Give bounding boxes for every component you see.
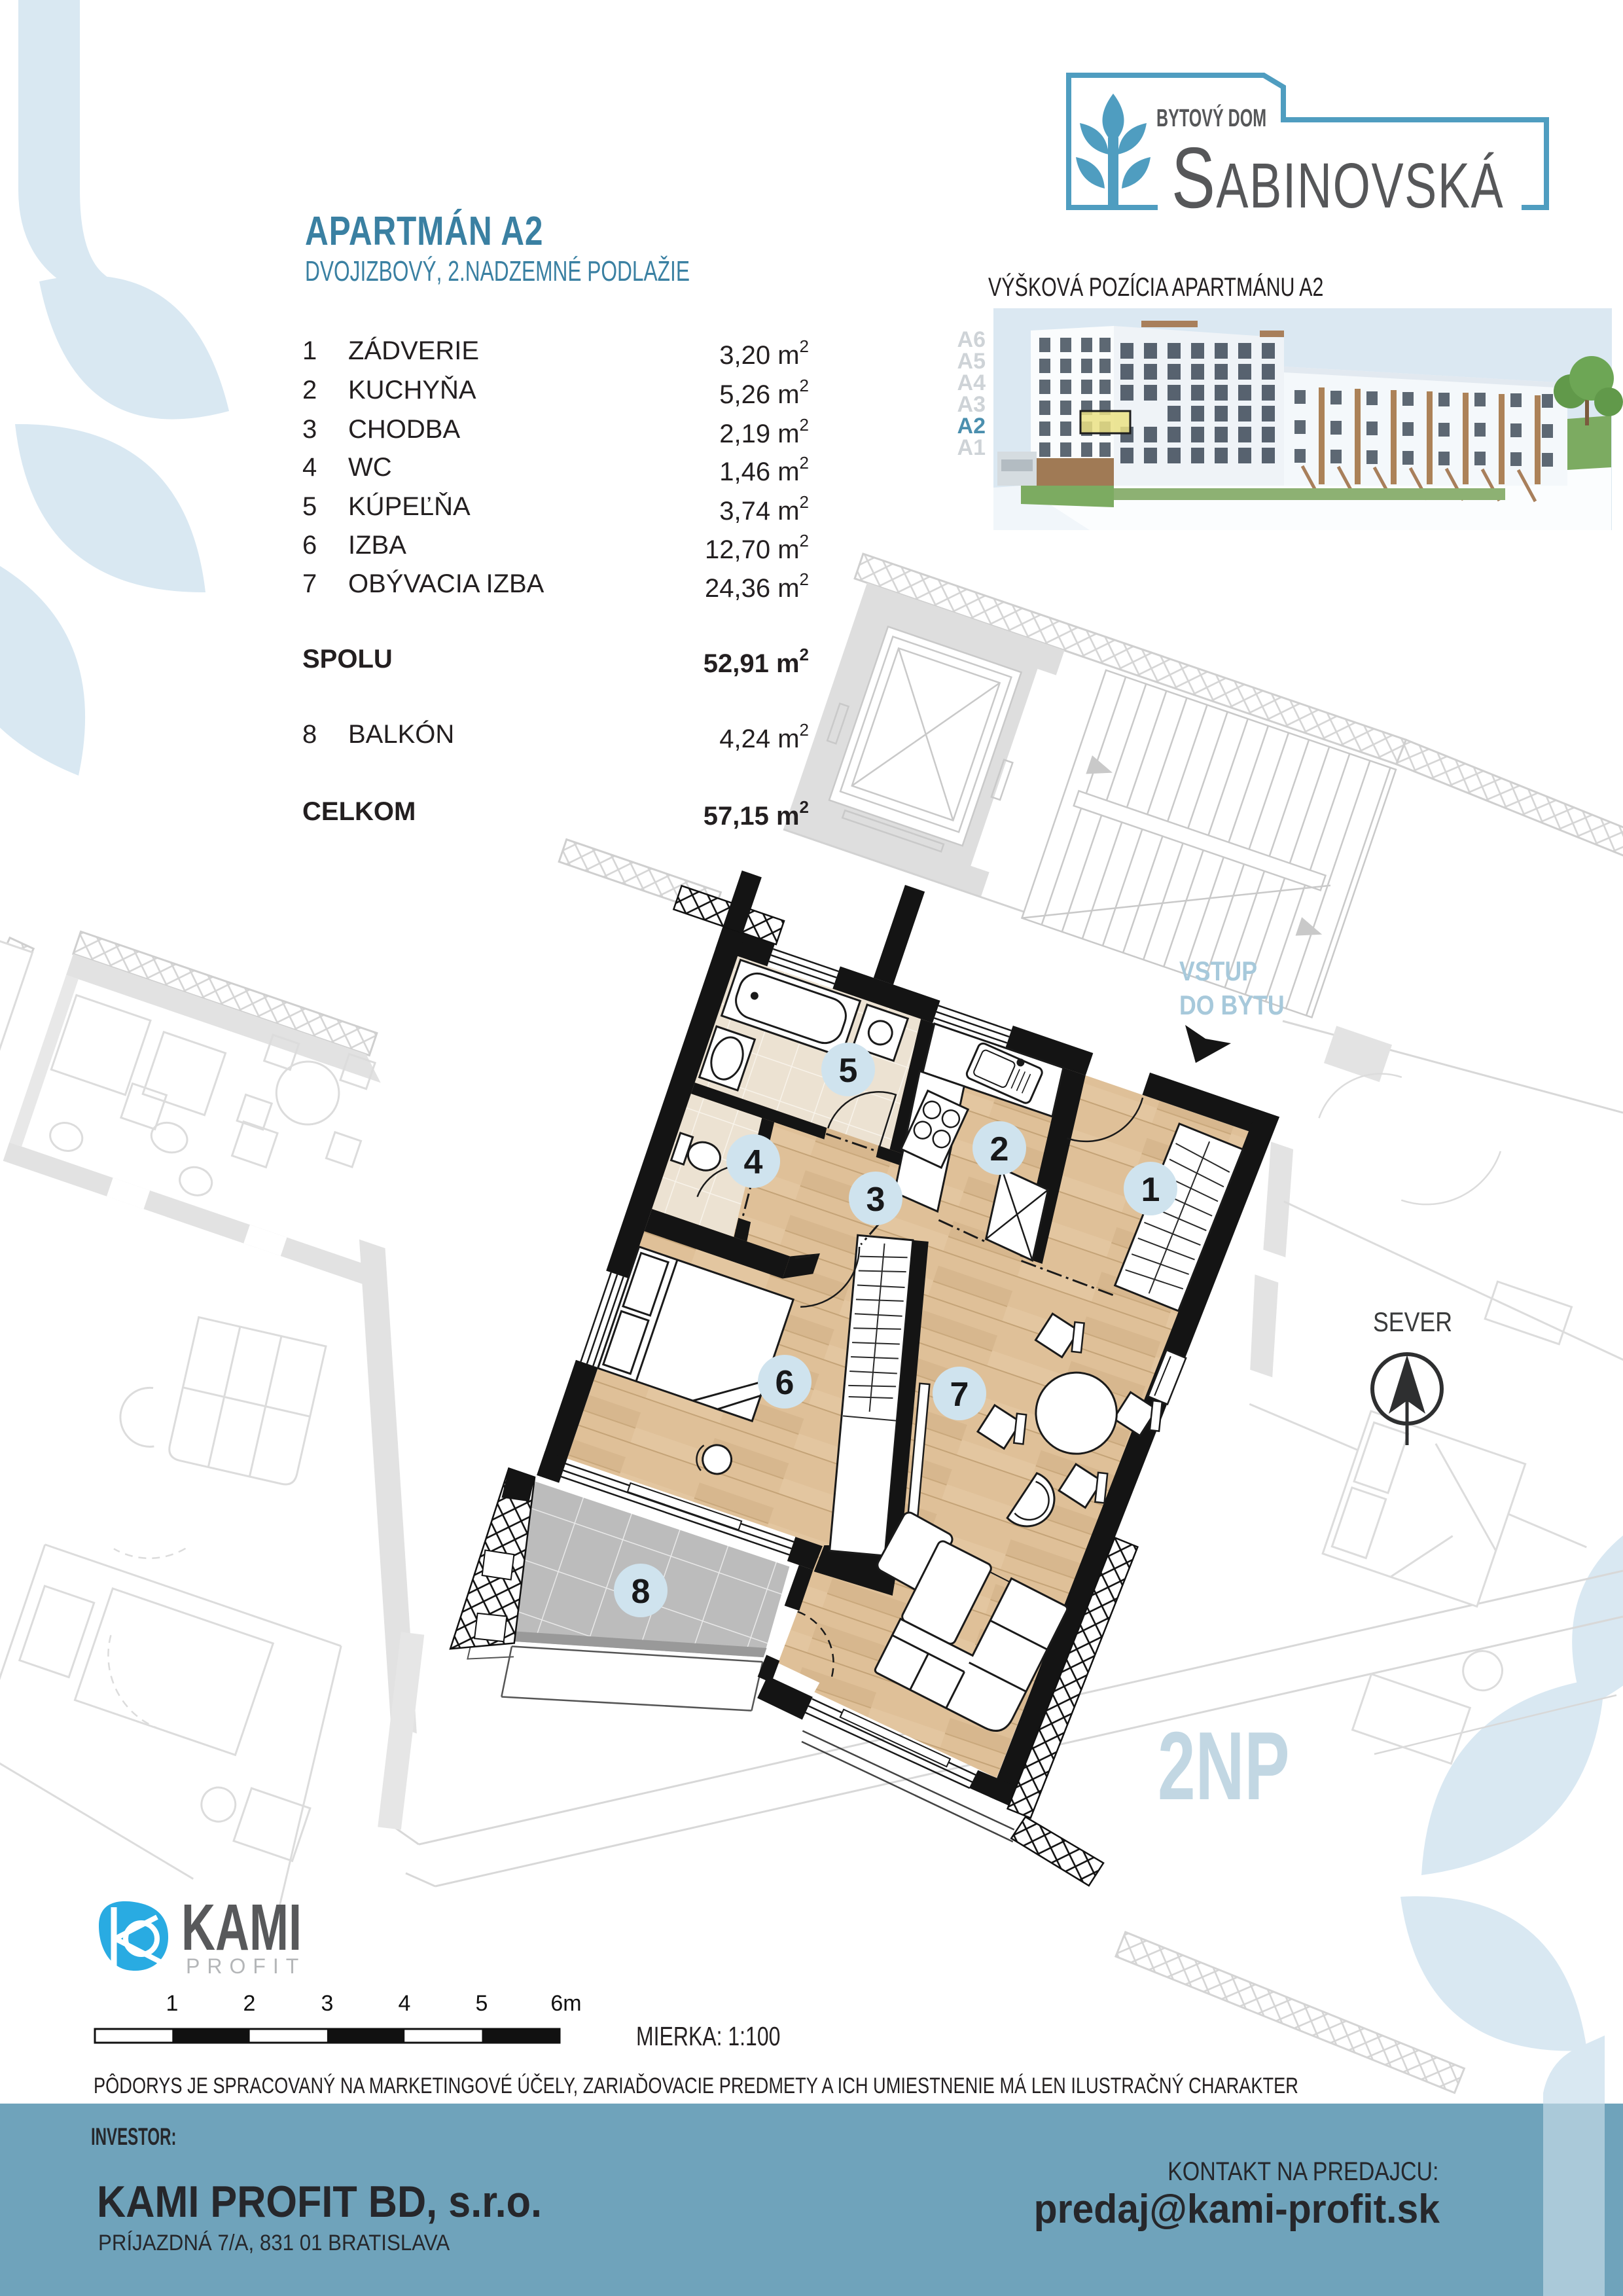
svg-text:7: 7 <box>950 1376 969 1414</box>
svg-text:4: 4 <box>744 1143 763 1181</box>
svg-text:3: 3 <box>866 1181 885 1219</box>
svg-text:1: 1 <box>1141 1171 1160 1209</box>
svg-text:6: 6 <box>776 1364 794 1402</box>
svg-text:5: 5 <box>839 1052 858 1090</box>
svg-text:2: 2 <box>990 1130 1009 1168</box>
svg-text:8: 8 <box>632 1573 651 1611</box>
